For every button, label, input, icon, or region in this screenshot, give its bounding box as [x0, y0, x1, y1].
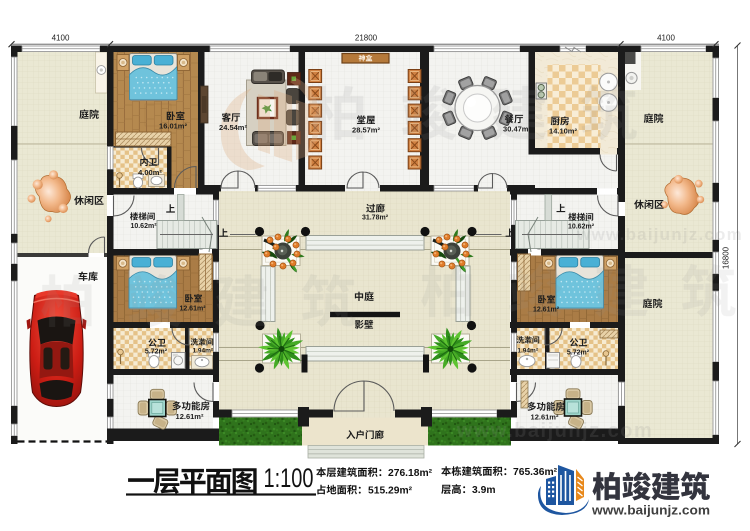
svg-text:www.baijunjz.com: www.baijunjz.com [576, 225, 743, 244]
svg-text:24.54m²: 24.54m² [219, 123, 247, 132]
svg-text:30.47m²: 30.47m² [503, 125, 531, 134]
svg-text:1:100: 1:100 [264, 463, 314, 493]
svg-text:1.94m²: 1.94m² [192, 348, 213, 355]
svg-text:10.62m²: 10.62m² [130, 223, 157, 230]
svg-text:21800: 21800 [355, 34, 378, 43]
svg-text:5.72m²: 5.72m² [145, 349, 168, 356]
svg-text:www.baijunjz.com: www.baijunjz.com [456, 420, 654, 442]
svg-text:16800: 16800 [722, 246, 731, 269]
svg-text:www.baijunjz.com: www.baijunjz.com [591, 503, 710, 518]
svg-text:12.61m²: 12.61m² [179, 306, 206, 313]
svg-text:12.61m²: 12.61m² [531, 412, 559, 421]
svg-text:765.36m²: 765.36m² [513, 467, 558, 478]
svg-text:1.94m²: 1.94m² [517, 348, 538, 355]
svg-text:4.00m²: 4.00m² [138, 168, 162, 177]
svg-text:515.29m²: 515.29m² [368, 486, 413, 497]
svg-text:276.18m²: 276.18m² [388, 468, 433, 479]
svg-text:14.10m²: 14.10m² [549, 127, 577, 136]
svg-text:12.61m²: 12.61m² [176, 412, 204, 421]
svg-text:12.61m²: 12.61m² [533, 307, 560, 314]
svg-text:4100: 4100 [52, 34, 70, 43]
svg-text:28.57m²: 28.57m² [352, 126, 380, 135]
svg-text:31.78m²: 31.78m² [362, 215, 389, 222]
svg-text:10.62m²: 10.62m² [568, 224, 595, 231]
svg-text:5.72m²: 5.72m² [567, 350, 590, 357]
svg-text:4100: 4100 [657, 34, 675, 43]
svg-text:3.9m: 3.9m [472, 485, 495, 496]
svg-text:16.01m²: 16.01m² [159, 122, 187, 131]
